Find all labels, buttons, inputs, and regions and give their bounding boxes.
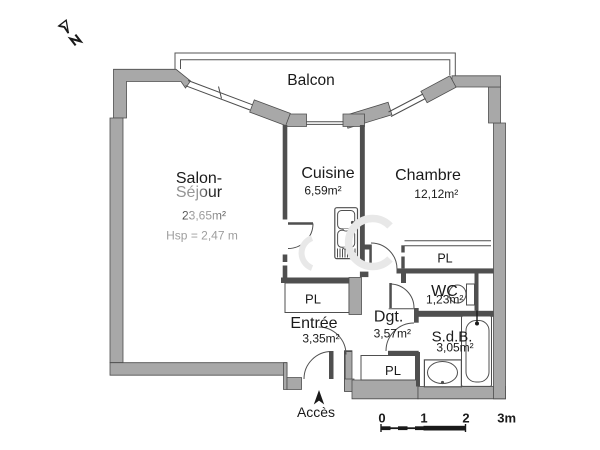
svg-text:PL: PL [437, 252, 452, 266]
svg-text:3,05m²: 3,05m² [436, 341, 473, 355]
svg-text:3m: 3m [497, 411, 516, 426]
svg-text:Cuisine: Cuisine [301, 165, 354, 182]
svg-text:23,65m²: 23,65m² [182, 209, 226, 223]
svg-text:3,57m²: 3,57m² [374, 327, 411, 341]
svg-text:Accès: Accès [297, 404, 335, 420]
svg-text:Entrée: Entrée [290, 315, 337, 332]
svg-text:1,23m²: 1,23m² [426, 293, 463, 307]
svg-text:2: 2 [462, 411, 469, 426]
svg-text:Dgt.: Dgt. [374, 309, 403, 326]
svg-text:0: 0 [378, 411, 385, 426]
svg-text:1: 1 [420, 411, 427, 426]
svg-text:3,35m²: 3,35m² [302, 332, 339, 346]
svg-text:Hsp = 2,47 m: Hsp = 2,47 m [166, 229, 238, 243]
svg-text:PL: PL [385, 363, 401, 378]
svg-text:Balcon: Balcon [287, 72, 334, 89]
svg-text:PL: PL [305, 292, 321, 307]
svg-text:6,59m²: 6,59m² [304, 184, 341, 198]
svg-text:12,12m²: 12,12m² [414, 187, 458, 201]
svg-text:Chambre: Chambre [395, 167, 461, 184]
svg-text:Séjour: Séjour [176, 184, 223, 201]
